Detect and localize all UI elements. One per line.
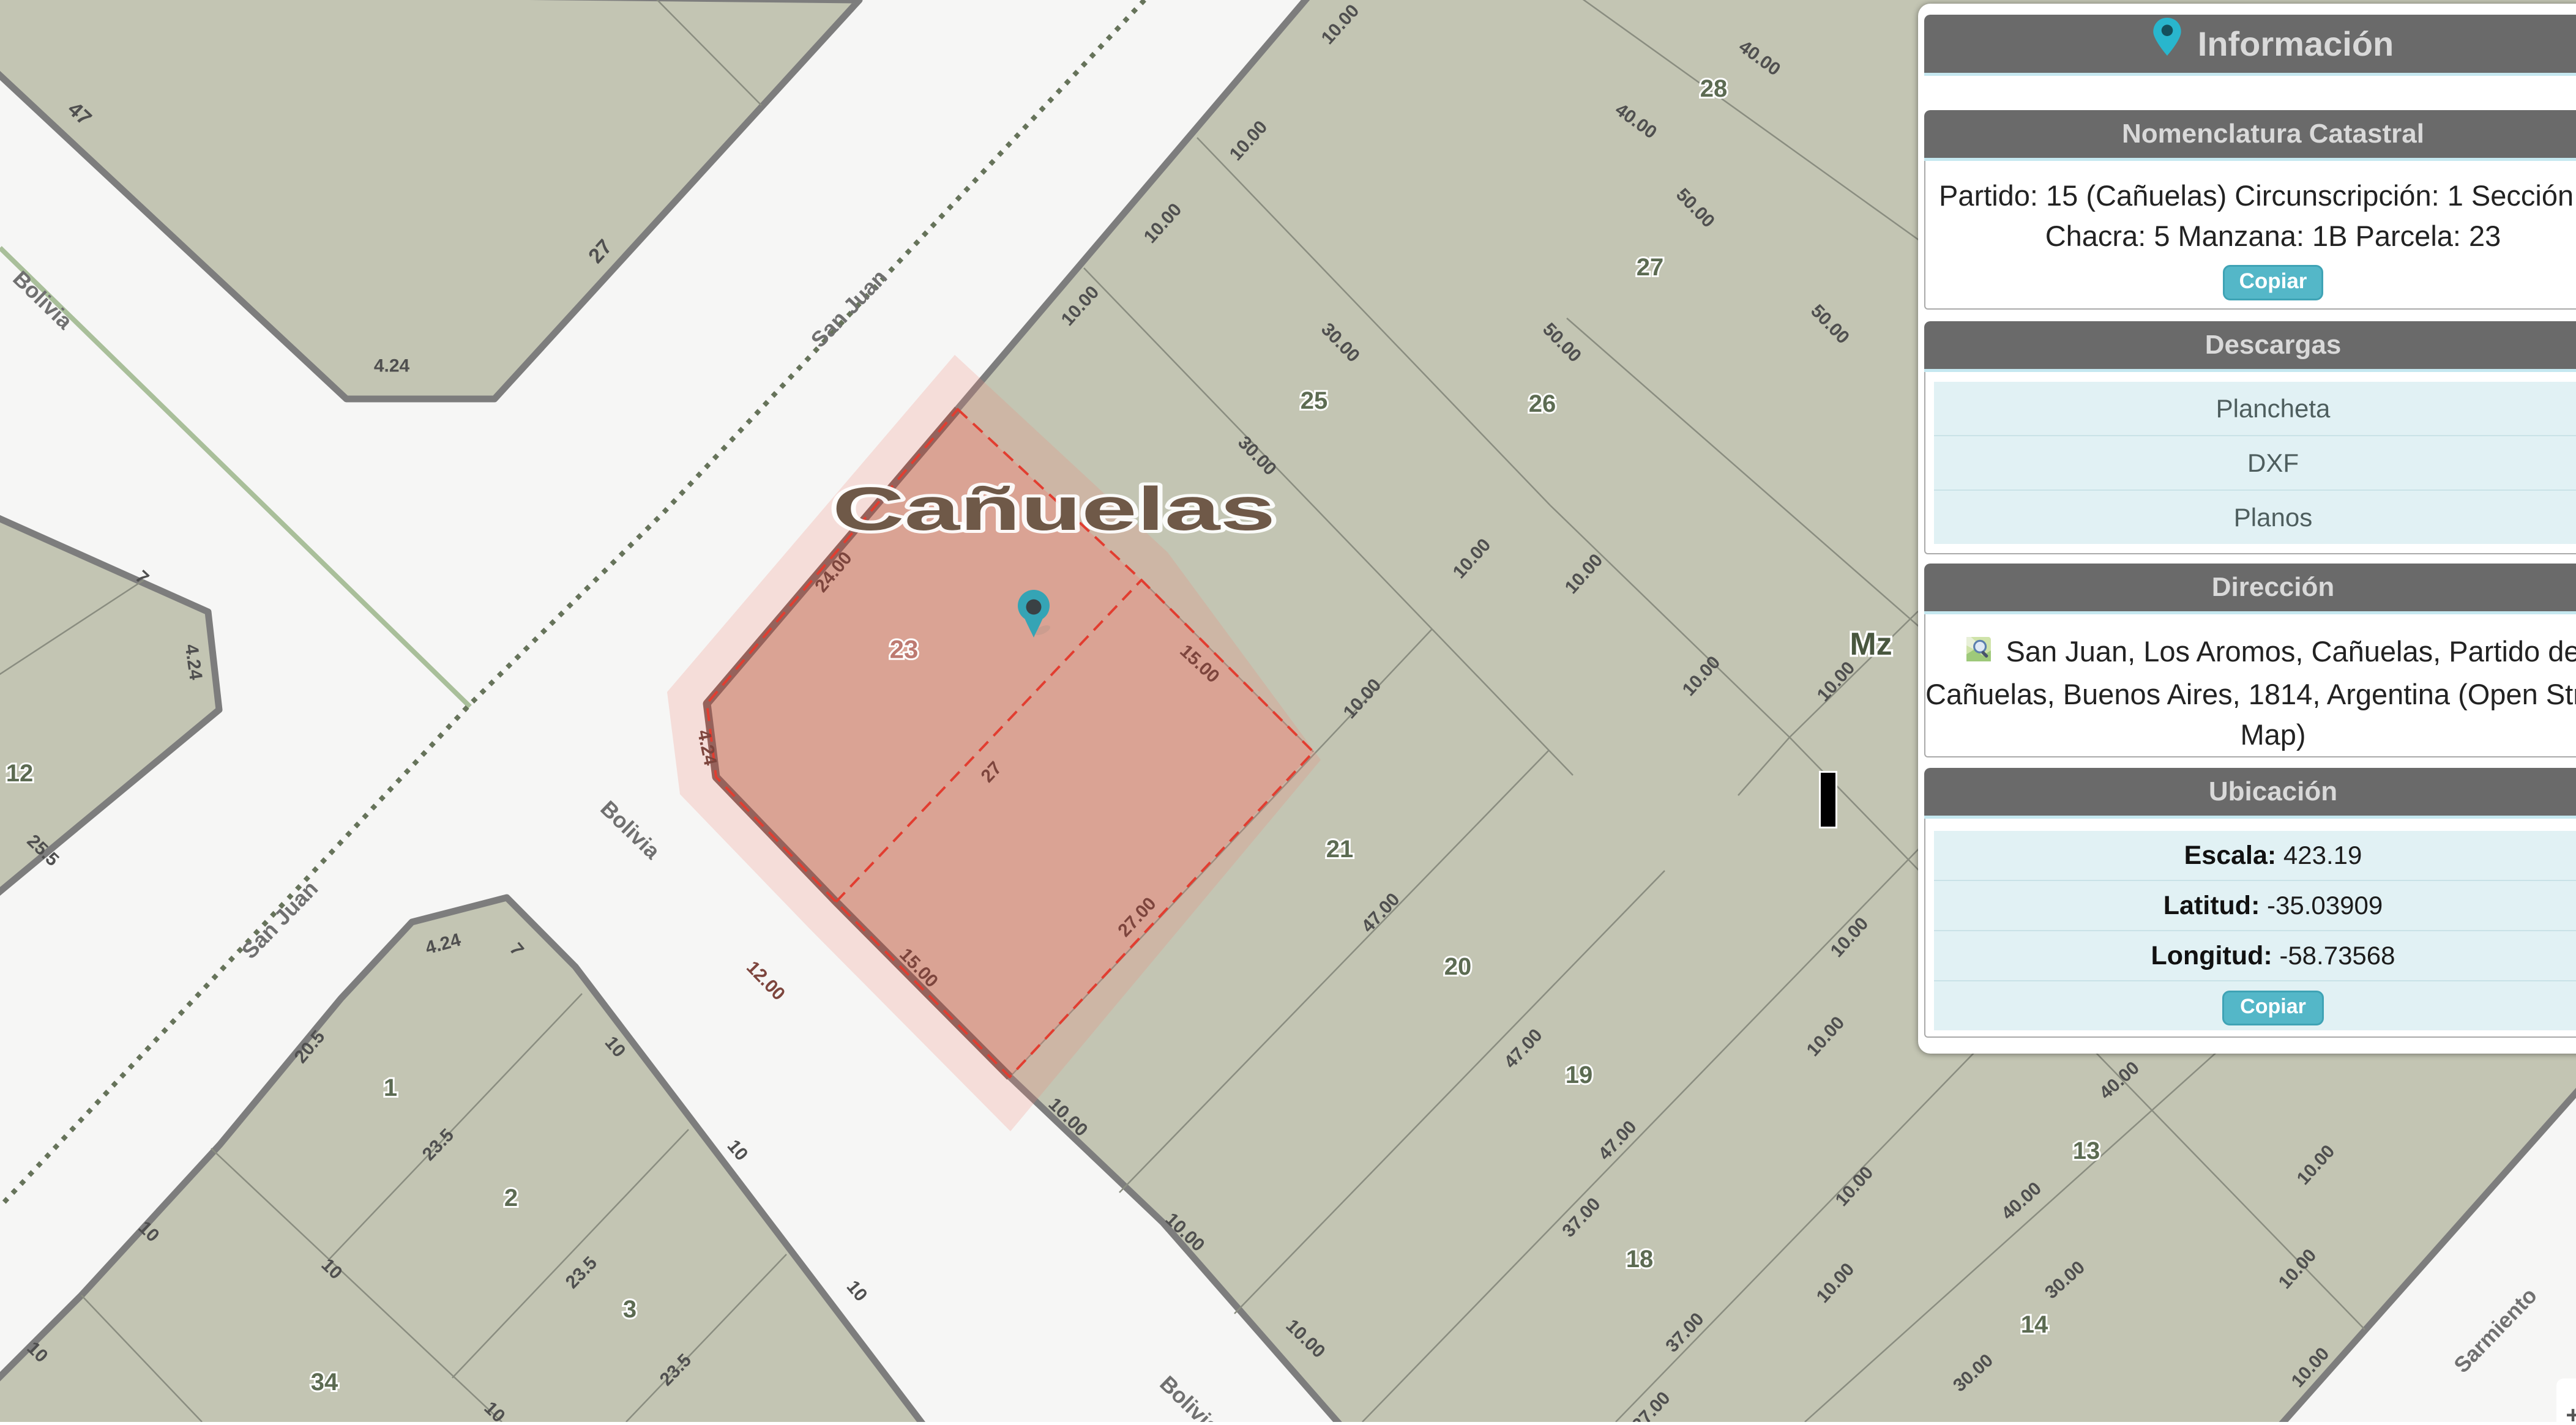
svg-text:+: + xyxy=(2566,1402,2576,1422)
svg-text:28: 28 xyxy=(1700,75,1728,102)
svg-text:13: 13 xyxy=(2073,1137,2100,1164)
svg-text:12: 12 xyxy=(6,760,34,787)
svg-text:19: 19 xyxy=(1566,1062,1593,1088)
svg-text:25: 25 xyxy=(1301,387,1328,414)
svg-text:21: 21 xyxy=(1326,836,1354,863)
svg-text:1: 1 xyxy=(384,1074,397,1101)
svg-text:27: 27 xyxy=(1637,254,1664,281)
svg-text:18: 18 xyxy=(1626,1246,1654,1273)
svg-text:Cañuelas: Cañuelas xyxy=(832,475,1275,543)
svg-text:2: 2 xyxy=(504,1185,518,1211)
svg-text:34: 34 xyxy=(311,1369,338,1396)
svg-text:Mz: Mz xyxy=(1850,627,1892,662)
svg-text:3: 3 xyxy=(623,1296,637,1323)
svg-text:4.24: 4.24 xyxy=(374,356,410,376)
svg-text:23: 23 xyxy=(890,635,919,664)
svg-text:26: 26 xyxy=(1529,390,1556,417)
svg-text:14: 14 xyxy=(2021,1311,2048,1338)
svg-text:20: 20 xyxy=(1444,953,1472,980)
